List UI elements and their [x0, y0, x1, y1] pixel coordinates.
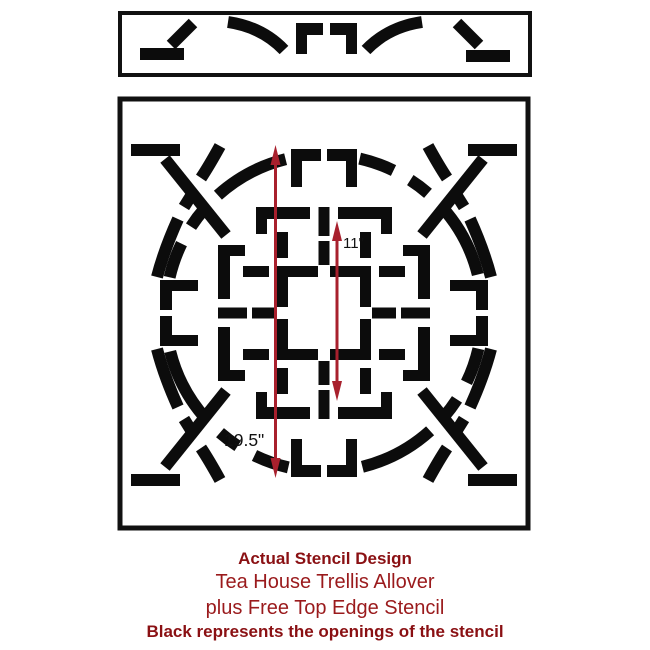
product-image: 19.5" 11" Actual Stencil Design Tea Hous… [0, 0, 650, 650]
caption-note: Black represents the openings of the ste… [146, 622, 503, 642]
dimension-label-11: 11" [343, 235, 364, 252]
main-stencil-panel [120, 99, 528, 528]
caption-product-name: Tea House Trellis Allover [216, 571, 435, 595]
caption-title: Actual Stencil Design [238, 549, 412, 569]
main-frame [120, 99, 528, 528]
caption-block: Actual Stencil Design Tea House Trellis … [0, 548, 650, 643]
dimension-label-19-5: 19.5" [224, 430, 264, 450]
caption-bonus-line: plus Free Top Edge Stencil [206, 597, 445, 621]
top-edge-frame [120, 13, 530, 75]
top-edge-stencil-panel [120, 13, 530, 75]
stencil-graphics: 19.5" 11" [0, 0, 650, 545]
